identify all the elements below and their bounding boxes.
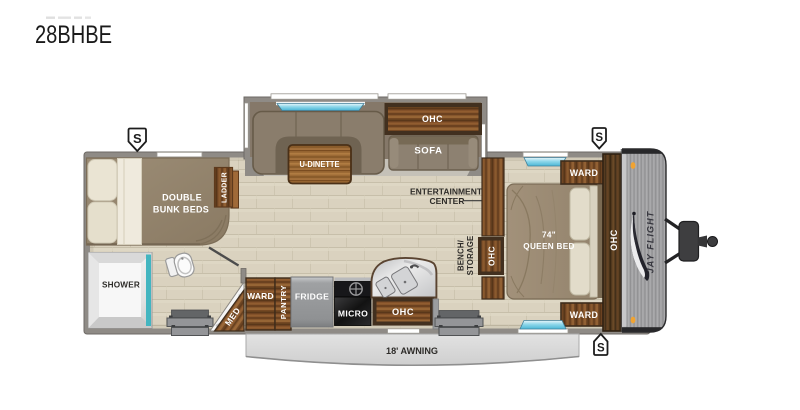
svg-text:OHC: OHC — [392, 307, 414, 317]
svg-text:DOUBLE: DOUBLE — [162, 193, 202, 203]
svg-text:S: S — [595, 132, 603, 144]
svg-text:OHC: OHC — [486, 246, 496, 266]
svg-text:MICRO: MICRO — [338, 309, 368, 319]
svg-text:PANTRY: PANTRY — [279, 285, 288, 320]
svg-text:U-DINETTE: U-DINETTE — [300, 160, 340, 169]
svg-text:S: S — [133, 131, 142, 146]
svg-text:74": 74" — [542, 231, 556, 240]
svg-text:28BHBE: 28BHBE — [35, 21, 112, 49]
svg-text:OHC: OHC — [609, 229, 619, 251]
svg-text:ENTERTAINMENT: ENTERTAINMENT — [410, 187, 483, 197]
svg-text:S: S — [597, 343, 605, 355]
svg-text:JAY FLIGHT: JAY FLIGHT — [646, 210, 656, 273]
svg-text:LADDER: LADDER — [222, 172, 229, 203]
svg-text:WARD: WARD — [570, 168, 598, 178]
svg-text:BUNK BEDS: BUNK BEDS — [153, 205, 209, 215]
svg-text:BENCH/: BENCH/ — [456, 239, 465, 271]
svg-text:STORAGE: STORAGE — [466, 236, 475, 276]
svg-text:18' AWNING: 18' AWNING — [386, 346, 438, 357]
svg-text:QUEEN BED: QUEEN BED — [523, 242, 574, 251]
svg-text:SOFA: SOFA — [414, 146, 442, 157]
svg-text:WARD: WARD — [570, 310, 598, 320]
svg-text:OHC: OHC — [422, 114, 443, 124]
svg-text:FRIDGE: FRIDGE — [295, 292, 329, 302]
svg-text:SHOWER: SHOWER — [102, 280, 140, 289]
svg-text:WARD: WARD — [247, 291, 274, 301]
svg-text:CENTER: CENTER — [430, 196, 465, 206]
